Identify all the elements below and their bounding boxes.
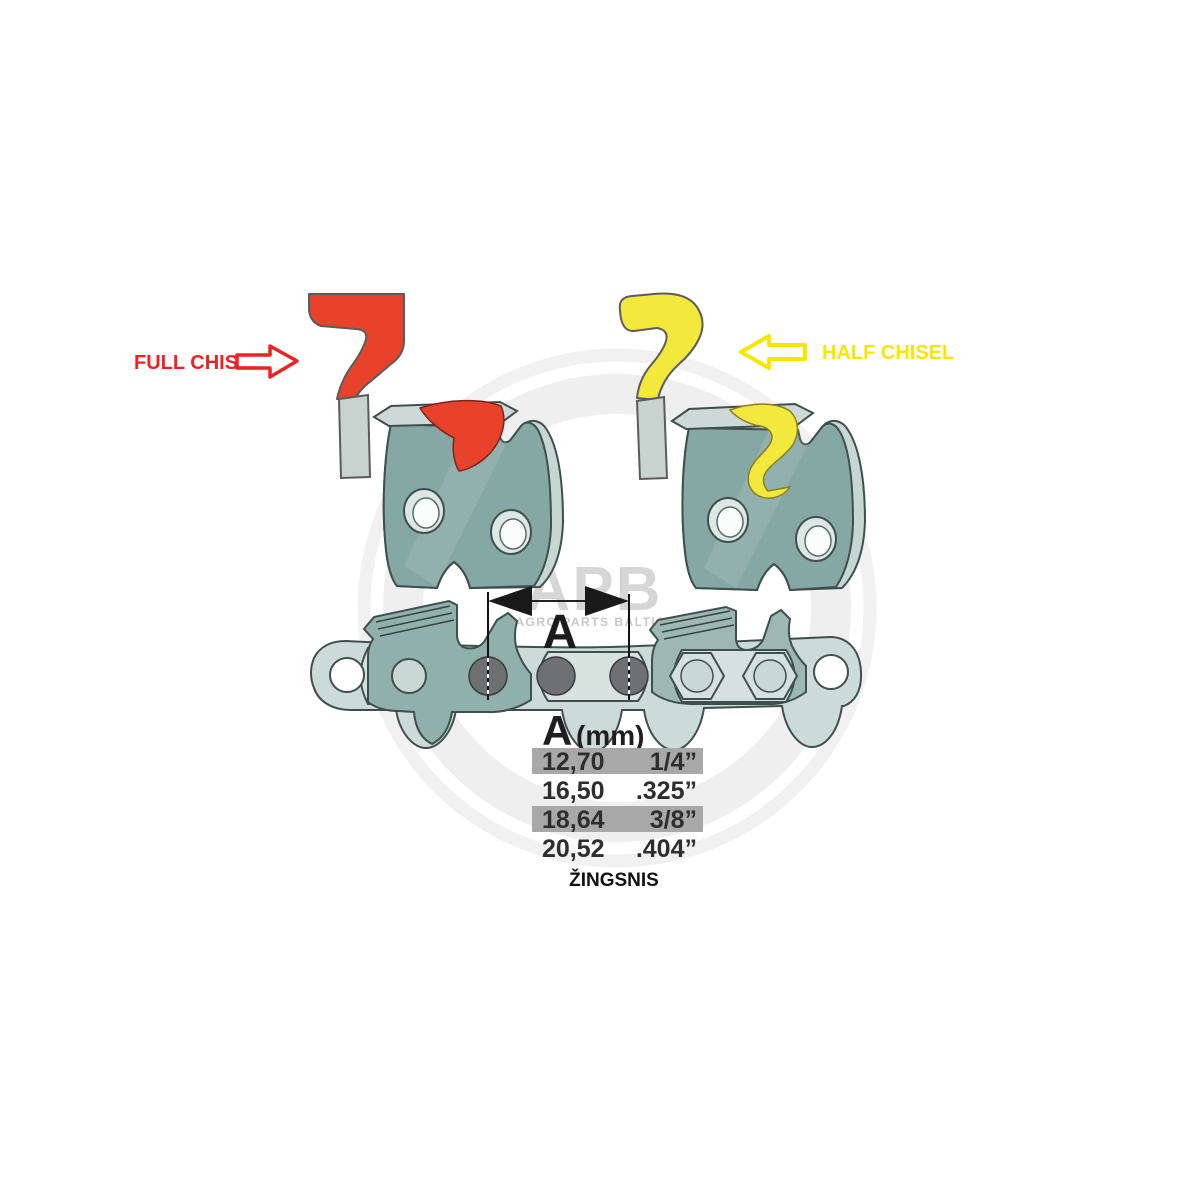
cell-mm: 12,70 — [542, 748, 605, 776]
half-chisel-callout: HALF CHISEL — [741, 336, 954, 368]
half-chisel-label: HALF CHISEL — [822, 342, 954, 364]
half-chisel-arrow-icon — [741, 336, 805, 368]
rivet-hole-inner — [413, 498, 439, 528]
hex-rivet-hole — [754, 660, 786, 692]
rivet-hole-inner — [717, 507, 743, 537]
table-row: 16,50 .325” — [542, 777, 697, 805]
chainsaw-chain-diagram: APB AGRO PARTS BALTIJA FULL CHISEL HALF … — [0, 0, 1188, 1188]
cell-inch: 3/8” — [650, 806, 697, 834]
table-header-unit: (mm) — [576, 720, 644, 751]
chain-end-hole — [814, 655, 848, 689]
cell-mm: 20,52 — [542, 835, 605, 863]
diagram-svg: APB AGRO PARTS BALTIJA FULL CHISEL HALF … — [0, 0, 1188, 1188]
watermark-subtitle: AGRO PARTS BALTIJA — [515, 615, 674, 629]
cell-inch: .325” — [636, 777, 697, 805]
full-chisel-profile-shape — [309, 294, 404, 401]
half-chisel-profile-stem — [637, 397, 667, 479]
full-chisel-profile-stem — [339, 395, 370, 478]
full-chisel-cutter-link — [374, 401, 563, 588]
half-chisel-cutter-link — [672, 404, 865, 590]
hex-rivet-hole — [681, 660, 713, 692]
arrowhead-left-icon — [488, 586, 532, 616]
chain-link-hole — [392, 659, 426, 693]
chain-rivet-dark — [537, 657, 575, 695]
cell-mm: 16,50 — [542, 777, 605, 805]
rivet-hole-inner — [805, 526, 831, 556]
rivet-hole-inner — [500, 519, 526, 549]
cell-inch: 1/4” — [650, 748, 697, 776]
table-header-letter: A — [542, 707, 572, 754]
dimension-label: A — [543, 606, 578, 659]
full-chisel-callout: FULL CHISEL — [134, 346, 297, 377]
cell-mm: 18,64 — [542, 806, 605, 834]
table-caption: ŽINGSNIS — [569, 869, 659, 891]
chain-end-hole — [330, 658, 364, 692]
cell-inch: .404” — [636, 835, 697, 863]
